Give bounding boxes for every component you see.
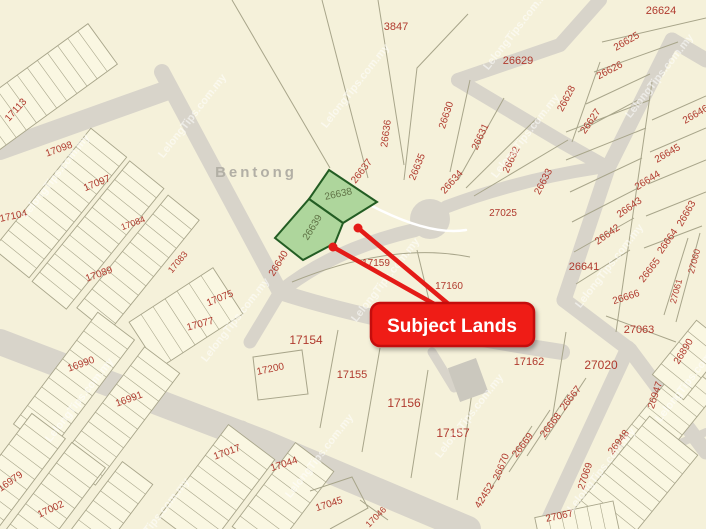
parcel-label-27020: 27020 <box>584 358 618 372</box>
parcel-label-26641: 26641 <box>569 261 600 273</box>
parcel-label-17160: 17160 <box>435 281 463 292</box>
parcel-label-26629: 26629 <box>503 55 534 67</box>
parcel-label-27025: 27025 <box>489 208 517 219</box>
parcel-label-3847: 3847 <box>384 21 408 33</box>
cadastral-map[interactable]: 3847171131709817097171041708417089170831… <box>0 0 706 529</box>
parcel-label-17156: 17156 <box>387 396 421 410</box>
parcel-label-17155: 17155 <box>337 369 368 381</box>
parcel-label-27063: 27063 <box>624 324 655 336</box>
parcel-label-17154: 17154 <box>289 333 323 347</box>
callout-label: Subject Lands <box>387 316 517 337</box>
parcel-label-26624: 26624 <box>646 5 677 17</box>
place-label: Bentong <box>215 164 297 181</box>
parcel-label-17162: 17162 <box>514 356 545 368</box>
subject-lands-callout: Subject Lands <box>371 303 534 346</box>
